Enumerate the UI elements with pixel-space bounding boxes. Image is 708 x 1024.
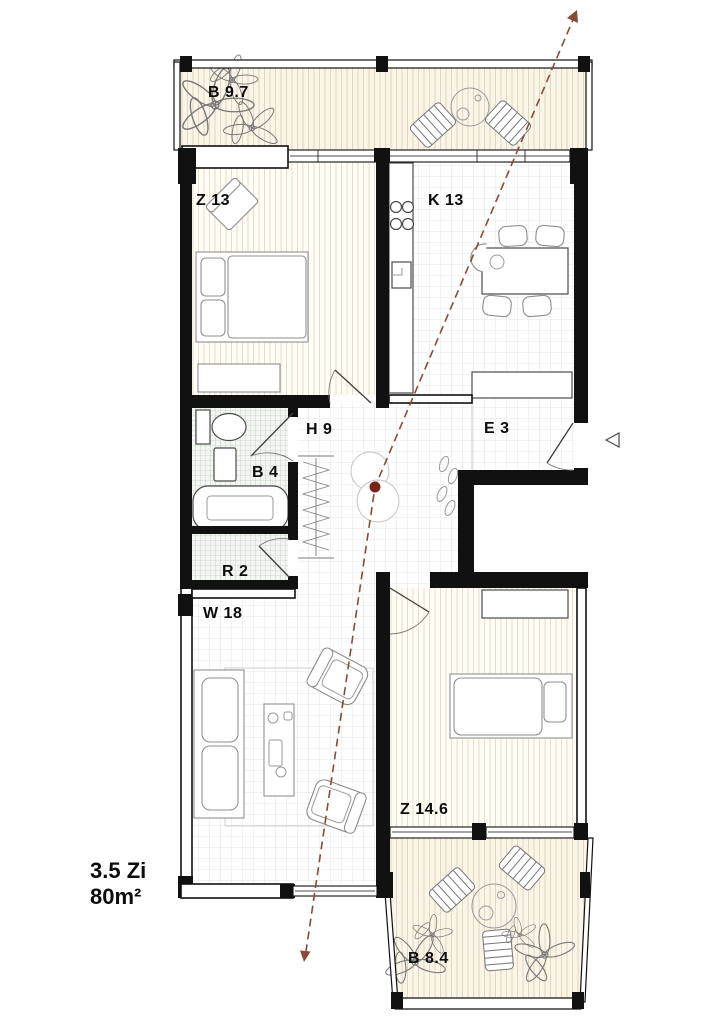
railing-post xyxy=(391,992,403,1009)
label-hall: H 9 xyxy=(306,421,332,438)
wall-right-lower xyxy=(577,588,586,827)
bathroom-wall xyxy=(288,462,298,537)
bedroom-2-balcony-door xyxy=(486,827,574,838)
duvet xyxy=(228,256,306,338)
wall-bedroom1-kitchen xyxy=(376,150,389,408)
floor-plan-canvas: B 9.7 Z 13 K 13 H 9 E 3 B 4 R 2 W 18 Z 1… xyxy=(0,0,708,1024)
wall-left-lower xyxy=(181,588,192,884)
pillow xyxy=(201,258,225,296)
reduit-wall xyxy=(288,526,298,540)
bedroom-2-north-wall xyxy=(430,572,588,588)
balcony-bench xyxy=(482,929,513,971)
bath-reduit-wall xyxy=(182,526,298,534)
sofa-cushion xyxy=(202,678,238,742)
railing-post xyxy=(180,56,192,72)
railing-side xyxy=(586,62,592,150)
entrance-south-wall xyxy=(458,470,588,485)
washbasin xyxy=(214,448,236,481)
balcony-door-bedroom-1 xyxy=(182,146,288,168)
summary-rooms: 3.5 Zi xyxy=(90,858,146,883)
sideboard xyxy=(472,372,572,398)
label-kitchen: K 13 xyxy=(428,192,464,209)
label-bathroom: B 4 xyxy=(252,464,278,481)
toilet-tank xyxy=(196,410,210,444)
dining-chair xyxy=(522,295,552,317)
pillow xyxy=(201,300,225,336)
stove-burner-icon xyxy=(403,219,414,230)
wall-pier xyxy=(574,823,588,840)
railing-post xyxy=(578,56,590,72)
wall-bedroom1-south xyxy=(180,395,330,408)
label-bedroom-1: Z 13 xyxy=(196,192,230,209)
stairwell-notch-wall xyxy=(458,470,474,588)
wall-right xyxy=(574,150,588,423)
shelf xyxy=(482,590,568,618)
balcony-bottom-railing xyxy=(393,998,583,1009)
wall-pier xyxy=(376,823,390,840)
stove-burner-icon xyxy=(391,219,402,230)
section-dot-icon xyxy=(370,482,381,493)
label-reduit: R 2 xyxy=(222,563,248,580)
toilet xyxy=(212,414,246,441)
railing-side xyxy=(174,62,180,150)
railing-post xyxy=(580,872,590,898)
label-balcony-top: B 9.7 xyxy=(208,84,249,101)
dining-chair xyxy=(498,225,527,247)
label-living: W 18 xyxy=(203,605,242,622)
label-entrance: E 3 xyxy=(484,420,510,437)
living-north-wall xyxy=(192,589,295,598)
sofa-cushion xyxy=(202,746,238,810)
label-bedroom-2: Z 14.6 xyxy=(400,801,448,818)
bedroom-2-window xyxy=(390,827,474,838)
label-balcony-bottom: B 8.4 xyxy=(408,950,449,967)
stove-burner-icon xyxy=(403,202,414,213)
dining-chair xyxy=(535,225,565,247)
dining-chair xyxy=(482,295,512,318)
duvet xyxy=(454,678,542,735)
dresser xyxy=(198,364,280,392)
wall-corner xyxy=(178,594,193,616)
floor-plan: B 9.7 Z 13 K 13 H 9 E 3 B 4 R 2 W 18 Z 1… xyxy=(0,0,708,1024)
wall-left xyxy=(180,150,192,588)
entrance-marker-icon xyxy=(606,433,619,447)
section-arrow-down-icon xyxy=(300,951,311,963)
living-south-wall xyxy=(181,884,293,898)
wall-living-bedroom2 xyxy=(376,572,390,898)
railing-post xyxy=(572,992,584,1009)
reduit-south-wall xyxy=(180,580,298,589)
pillow xyxy=(544,682,566,722)
stove-burner-icon xyxy=(391,202,402,213)
summary-area: 80m² xyxy=(90,884,141,909)
railing-post xyxy=(376,56,388,72)
wall-pier xyxy=(472,823,486,840)
wall-kitchen-hall xyxy=(389,395,472,403)
